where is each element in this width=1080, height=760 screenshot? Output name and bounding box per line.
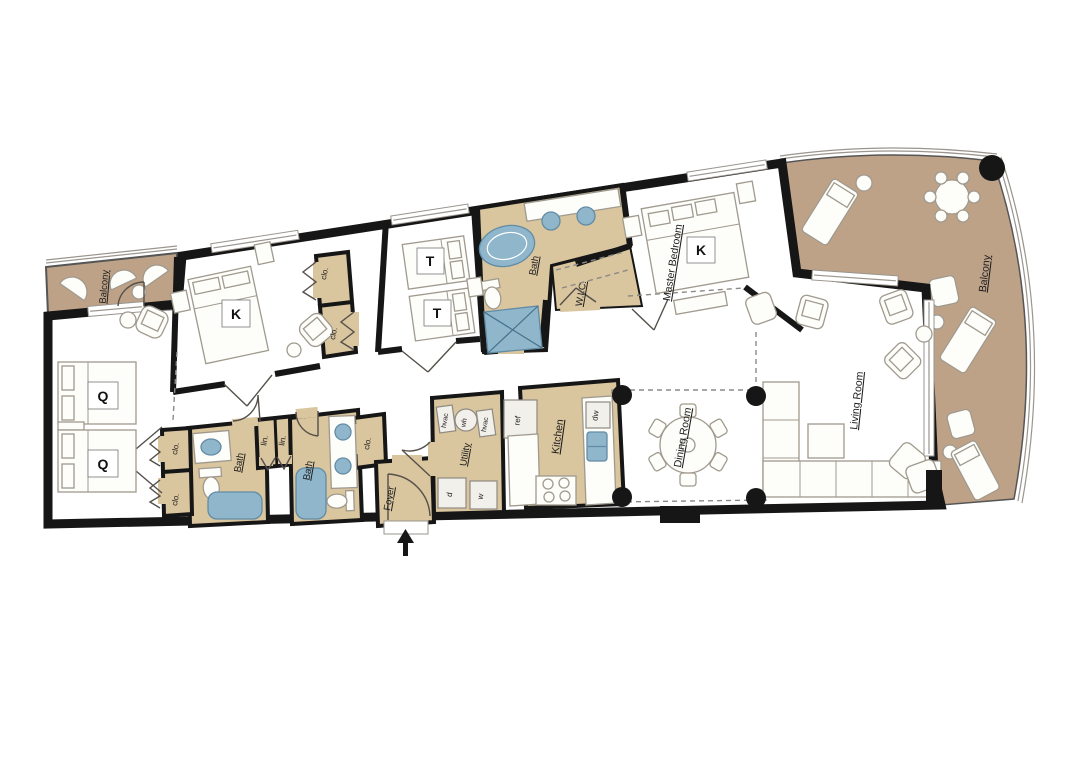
linen-label: lin. [259, 435, 270, 447]
nightstand [623, 215, 642, 237]
king-bed-master-label: K [696, 242, 706, 258]
nightstand [170, 290, 190, 313]
coffee-table [808, 424, 844, 458]
queen-bed-label: Q [98, 456, 109, 472]
bench [674, 292, 728, 315]
side-table [120, 312, 136, 328]
king-bed-label: K [231, 306, 241, 322]
shower [484, 306, 542, 353]
sink [335, 424, 351, 440]
nightstand [736, 181, 755, 203]
ottoman [287, 343, 301, 357]
nightstand [467, 277, 483, 297]
tub [208, 492, 262, 519]
nightstand [254, 242, 274, 265]
twin-bed-label: T [433, 305, 442, 321]
twin-bed-label: T [426, 253, 435, 269]
living-room-label: Living Room [848, 371, 866, 431]
dishwasher-label: dw [590, 410, 600, 422]
entry [384, 521, 428, 556]
patio-table [856, 175, 872, 191]
side-table [916, 326, 932, 342]
sink [201, 439, 221, 455]
counter [508, 434, 540, 506]
queen-bed-label: Q [98, 388, 109, 404]
nightstand [58, 422, 84, 430]
stove [536, 476, 576, 505]
sink [335, 458, 351, 474]
armchair [744, 291, 778, 326]
floor-plan-canvas: Balcony Balcony Master Bedroom Bath W.I.… [0, 0, 1080, 760]
sink [542, 212, 560, 230]
linen-label: lin. [277, 435, 288, 447]
sink [577, 207, 595, 225]
